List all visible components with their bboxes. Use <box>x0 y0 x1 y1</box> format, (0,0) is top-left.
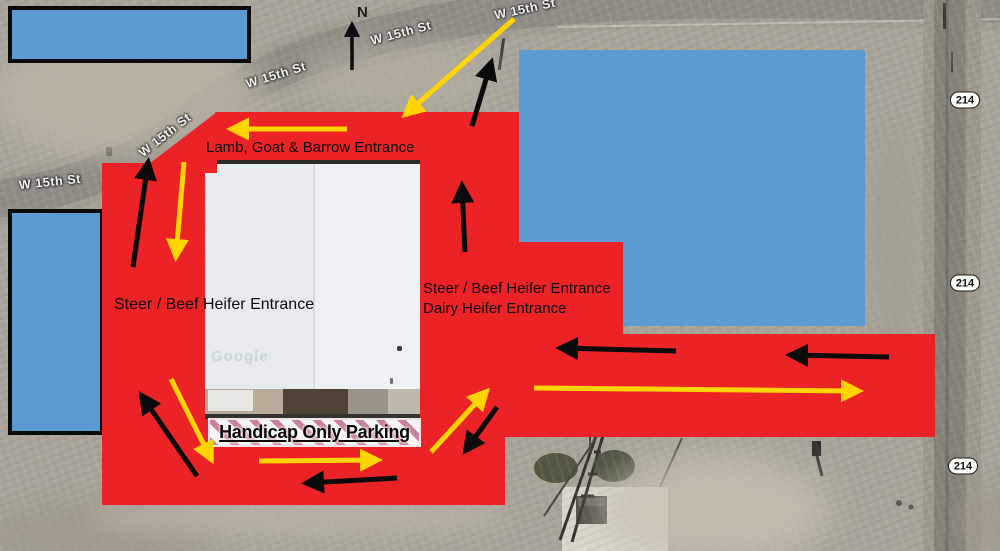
west-entry-arrow <box>176 162 184 256</box>
highway-badge: 214 <box>950 275 980 292</box>
south-exit-arrow <box>307 478 397 483</box>
center-entry-arrow <box>431 392 486 452</box>
highway-badge: 214 <box>950 92 980 109</box>
north-exit-arrow <box>472 63 491 126</box>
east-exit-arrow-1 <box>561 348 676 351</box>
southwest-exit-arrow <box>142 396 197 476</box>
strip-exit-arrow <box>462 186 465 252</box>
west-exit-arrow <box>133 163 148 267</box>
south-entry-arrow <box>259 460 377 461</box>
center-exit-arrow <box>466 407 497 450</box>
satellite-map: Google Handicap Only Parking Lamb, Goat … <box>0 0 1000 551</box>
highway-badge: 214 <box>948 458 978 475</box>
east-entry-arrow <box>534 388 858 391</box>
north-indicator: N <box>357 4 368 21</box>
route-arrows <box>0 0 1000 551</box>
east-exit-arrow-2 <box>791 355 889 357</box>
